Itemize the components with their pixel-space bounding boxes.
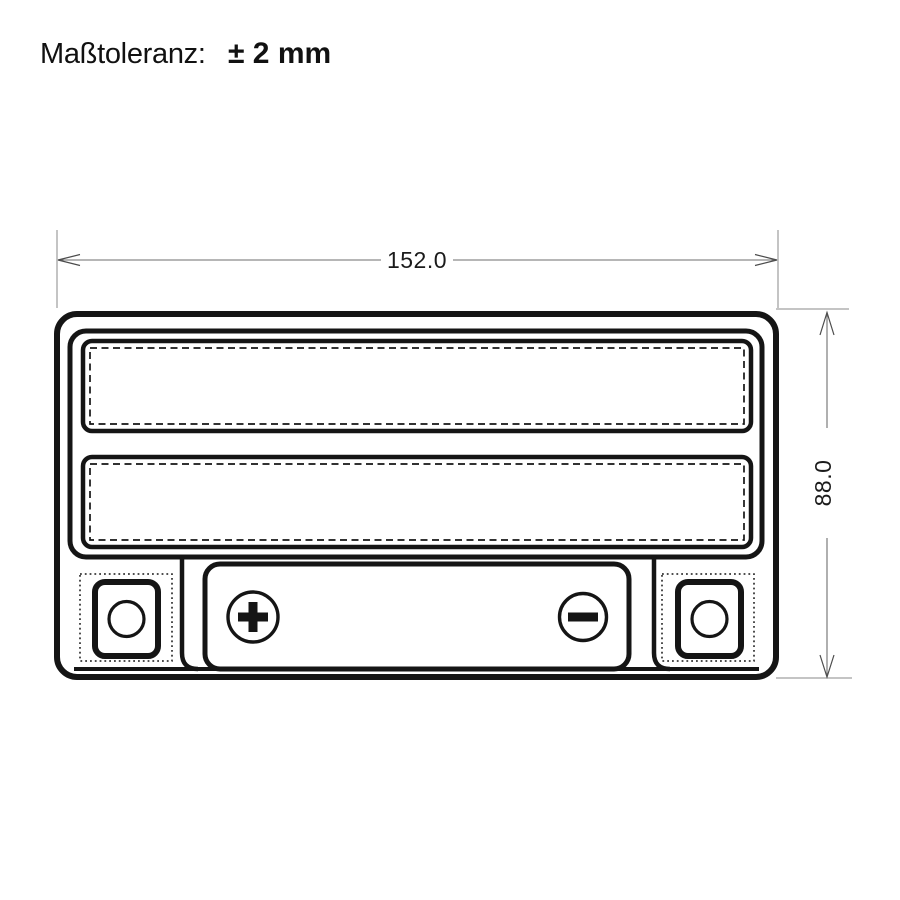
battery-body [57, 314, 776, 677]
battery-dimension-drawing: Maßtoleranz: ± 2 mm 152.0 88.0 [0, 0, 900, 900]
terminal-plate [205, 564, 629, 669]
page: Maßtoleranz: ± 2 mm 152.0 88.0 [0, 0, 900, 900]
height-value: 88.0 [810, 460, 836, 507]
width-value: 152.0 [387, 247, 447, 273]
tolerance-note: Maßtoleranz: ± 2 mm [40, 37, 331, 70]
tolerance-label: Maßtoleranz: [40, 38, 206, 70]
minus-icon [568, 613, 598, 622]
height-dimension: 88.0 [776, 309, 852, 678]
tolerance-value: ± 2 mm [228, 37, 331, 70]
terminal-plate-outline [205, 564, 629, 669]
width-dimension: 152.0 [57, 230, 778, 308]
